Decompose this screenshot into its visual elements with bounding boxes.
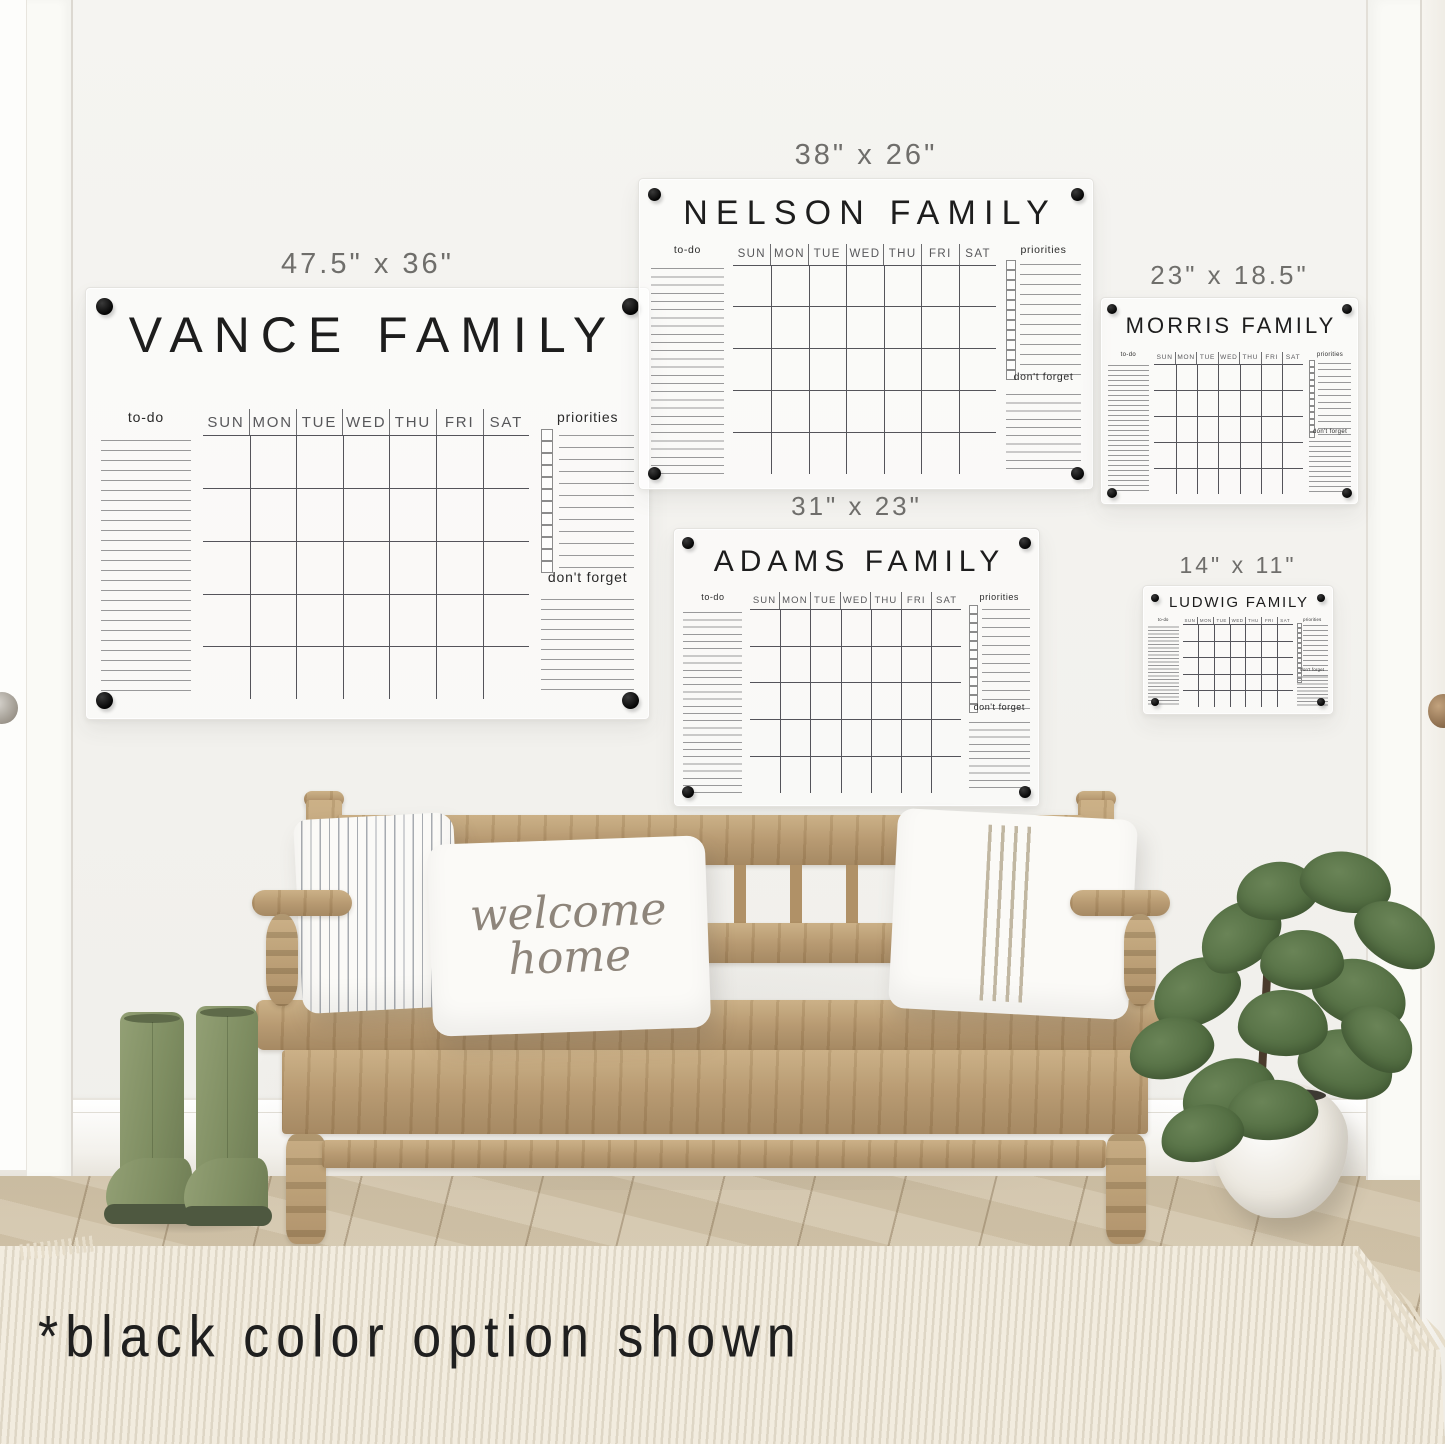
calendar-grid-cell (750, 646, 780, 683)
calendar-grid (203, 435, 529, 699)
priority-line (1318, 434, 1352, 435)
todo-lines (101, 431, 192, 699)
priorities-label: priorities (1297, 617, 1329, 622)
day-label: TUE (1197, 352, 1218, 363)
priority-line (1020, 284, 1081, 285)
calendar-grid-cell (931, 719, 961, 756)
board-body: to-do SUNMONTUEWEDTHUFRISAT priorities d… (1143, 617, 1333, 715)
calendar-grid-cell (750, 719, 780, 756)
calendar-grid-cell (809, 348, 847, 390)
calendar-grid-cell (389, 541, 436, 594)
calendar-grid-cell (959, 348, 997, 390)
checkbox-icon (969, 623, 978, 632)
priority-row (1006, 320, 1081, 330)
caption-text: *black color option shown (38, 1304, 803, 1371)
calendar-grid-cell (1230, 674, 1246, 691)
dont-forget-lines (1006, 387, 1081, 474)
priority-row (541, 513, 634, 525)
calendar-grid-cell (1197, 416, 1218, 442)
mounting-dot (96, 692, 113, 709)
calendar-board-ludwig: 14" x 11" LUDWIG FAMILY to-do SUNMONTUEW… (1142, 585, 1334, 715)
priority-line (982, 699, 1030, 700)
checkbox-icon (969, 659, 978, 668)
calendar-grid-cell (733, 348, 771, 390)
day-label: TUE (811, 592, 841, 609)
calendar-grid-cell (436, 594, 483, 647)
calendar-grid (750, 609, 961, 793)
calendar-grid-cell (389, 646, 436, 699)
calendar-grid-cell (296, 541, 343, 594)
calendar-grid (1154, 364, 1303, 494)
priority-line (1020, 314, 1081, 315)
day-label: WED (841, 592, 871, 609)
calendar-grid-cell (1261, 416, 1282, 442)
calendar-grid-cell (1240, 468, 1261, 494)
calendar-grid-cell (841, 609, 871, 646)
calendar-grid-cell (841, 646, 871, 683)
calendar-grid-cell (1197, 442, 1218, 468)
calendar-grid-cell (343, 488, 390, 541)
priority-line (1020, 364, 1081, 365)
checkbox-icon (969, 632, 978, 641)
calendar-grid-cell (1282, 390, 1303, 416)
calendar-grid-cell (901, 756, 931, 793)
calendar-column: SUNMONTUEWEDTHUFRISAT (203, 409, 529, 699)
welcome-home-pillow: welcome home (427, 835, 712, 1037)
board-body: to-do SUNMONTUEWEDTHUFRISAT priorities d… (1101, 352, 1358, 504)
size-label: 31" x 23" (791, 491, 922, 522)
checkbox-icon (1006, 310, 1016, 320)
day-label: SUN (733, 244, 771, 264)
checkbox-icon (541, 537, 553, 549)
calendar-grid-cell (959, 390, 997, 432)
day-label: WED (1219, 352, 1240, 363)
priority-line (1020, 354, 1081, 355)
calendar-grid-cell (296, 435, 343, 488)
calendar-grid-cell (483, 488, 530, 541)
day-label: WED (847, 244, 885, 264)
day-label: SAT (484, 409, 530, 435)
todo-lines (1148, 624, 1179, 707)
mounting-dot (1151, 594, 1159, 602)
calendar-grid (1183, 624, 1293, 707)
left-door (0, 0, 28, 1170)
calendar-grid-cell (846, 348, 884, 390)
priority-row (1006, 350, 1081, 360)
checkbox-icon (1006, 280, 1016, 290)
day-header-row: SUNMONTUEWEDTHUFRISAT (1154, 352, 1303, 363)
checkbox-icon (1006, 340, 1016, 350)
calendar-grid-cell (959, 306, 997, 348)
day-label: SAT (1278, 617, 1293, 625)
todo-lines (683, 606, 742, 793)
calendar-grid-cell (1277, 657, 1293, 674)
bench-arm-post-right (1124, 914, 1156, 1006)
priorities-label: priorities (541, 409, 634, 425)
calendar-grid-cell (1245, 690, 1261, 707)
todo-lines (1108, 361, 1149, 494)
priority-line (982, 690, 1030, 691)
side-column: priorities don't forget (541, 409, 634, 699)
dont-forget-lines (969, 716, 1030, 793)
priority-line (1303, 630, 1328, 631)
calendar-grid-cell (1245, 657, 1261, 674)
calendar-grid-cell (1277, 690, 1293, 707)
calendar-grid-cell (771, 390, 809, 432)
calendar-grid-cell (343, 594, 390, 647)
priority-line (1318, 389, 1352, 390)
calendar-grid-cell (1282, 468, 1303, 494)
checkbox-icon (541, 549, 553, 561)
calendar-grid-cell (1277, 641, 1293, 658)
mounting-dot (648, 467, 661, 480)
calendar-grid-cell (343, 646, 390, 699)
day-label: SUN (203, 409, 250, 435)
calendar-grid-cell (871, 609, 901, 646)
family-title: LUDWIG FAMILY (1143, 595, 1333, 612)
calendar-grid-cell (203, 646, 250, 699)
calendar-grid-cell (810, 682, 840, 719)
calendar-grid-cell (1240, 416, 1261, 442)
calendar-grid-cell (203, 594, 250, 647)
priority-line (1318, 408, 1352, 409)
priority-row (541, 453, 634, 465)
calendar-grid-cell (436, 541, 483, 594)
priority-line (982, 627, 1030, 628)
calendar-grid-cell (810, 719, 840, 756)
day-label: THU (884, 244, 922, 264)
calendar-grid-cell (1261, 442, 1282, 468)
mounting-dot (622, 298, 639, 315)
priority-line (559, 519, 635, 520)
calendar-grid-cell (810, 756, 840, 793)
priority-line (1303, 660, 1328, 661)
priority-line (559, 459, 635, 460)
calendar-grid-cell (1183, 690, 1199, 707)
calendar-grid-cell (1214, 657, 1230, 674)
day-label: SAT (932, 592, 961, 609)
calendar-grid-cell (901, 646, 931, 683)
calendar-grid-cell (1261, 690, 1277, 707)
calendar-grid-cell (750, 756, 780, 793)
pillow-text-line2: home (508, 934, 632, 983)
todo-label: to-do (651, 244, 724, 256)
priority-line (1303, 650, 1328, 651)
calendar-grid-cell (1218, 442, 1239, 468)
calendar-grid-cell (1198, 690, 1214, 707)
calendar-grid (733, 265, 996, 474)
day-label: FRI (437, 409, 484, 435)
calendar-grid-cell (771, 432, 809, 474)
calendar-grid-cell (296, 488, 343, 541)
calendar-grid-cell (203, 488, 250, 541)
mounting-dot (96, 298, 113, 315)
priority-line (1318, 415, 1352, 416)
day-label: MON (771, 244, 809, 264)
calendar-grid-cell (901, 682, 931, 719)
priority-row (541, 441, 634, 453)
calendar-grid-cell (1218, 416, 1239, 442)
calendar-grid-cell (1176, 364, 1197, 390)
checkbox-icon (1006, 330, 1016, 340)
calendar-grid-cell (250, 488, 297, 541)
calendar-grid-cell (921, 432, 959, 474)
day-label: SUN (750, 592, 780, 609)
checkbox-icon (969, 686, 978, 695)
priority-line (1303, 625, 1328, 626)
calendar-board-vance: 47.5" x 36" VANCE FAMILY to-do SUNMONTUE… (85, 287, 650, 720)
calendar-grid-cell (483, 594, 530, 647)
calendar-grid-cell (846, 306, 884, 348)
calendar-grid-cell (901, 719, 931, 756)
family-title: MORRIS FAMILY (1101, 314, 1358, 338)
calendar-grid-cell (1240, 390, 1261, 416)
calendar-grid-cell (809, 265, 847, 307)
calendar-grid-cell (959, 432, 997, 474)
priority-row (1006, 340, 1081, 350)
calendar-column: SUNMONTUEWEDTHUFRISAT (1154, 352, 1303, 494)
checkbox-icon (541, 441, 553, 453)
todo-column: to-do (651, 244, 724, 474)
checkbox-icon (969, 641, 978, 650)
side-column: priorities don't forget (1297, 617, 1329, 708)
calendar-grid-cell (884, 348, 922, 390)
dont-forget-label: don't forget (969, 702, 1030, 712)
calendar-grid-cell (1183, 674, 1199, 691)
rain-boot-left (120, 1012, 184, 1182)
calendar-grid-cell (1245, 624, 1261, 641)
side-column: priorities don't forget (1006, 244, 1081, 474)
calendar-grid-cell (1230, 624, 1246, 641)
priority-line (982, 636, 1030, 637)
priority-line (1020, 304, 1081, 305)
priority-row (541, 501, 634, 513)
day-label: FRI (922, 244, 960, 264)
size-label: 14" x 11" (1179, 552, 1296, 579)
calendar-grid-cell (1176, 416, 1197, 442)
calendar-grid-cell (780, 719, 810, 756)
todo-label: to-do (1148, 617, 1179, 622)
priority-row (1006, 300, 1081, 310)
day-header-row: SUNMONTUEWEDTHUFRISAT (203, 409, 529, 435)
day-label: WED (343, 409, 390, 435)
mounting-dot (682, 537, 694, 549)
calendar-grid-cell (483, 435, 530, 488)
priority-line (559, 507, 635, 508)
day-label: FRI (902, 592, 932, 609)
priorities-checklist (969, 605, 1030, 693)
calendar-grid-cell (921, 390, 959, 432)
priority-row (1006, 270, 1081, 280)
calendar-grid-cell (436, 488, 483, 541)
calendar-grid-cell (1230, 641, 1246, 658)
calendar-grid-cell (1154, 442, 1175, 468)
calendar-grid-cell (841, 682, 871, 719)
rain-boot-right-sole (182, 1206, 272, 1226)
checkbox-icon (969, 650, 978, 659)
dont-forget-lines (1309, 437, 1352, 494)
calendar-grid-cell (250, 594, 297, 647)
calendar-grid-cell (771, 265, 809, 307)
day-header-row: SUNMONTUEWEDTHUFRISAT (750, 592, 961, 609)
checkbox-icon (541, 465, 553, 477)
board-body: to-do SUNMONTUEWEDTHUFRISAT priorities d… (674, 592, 1039, 806)
checkbox-icon (541, 429, 553, 441)
priority-line (982, 663, 1030, 664)
calendar-grid-cell (296, 646, 343, 699)
checkbox-icon (1006, 260, 1016, 270)
calendar-grid-cell (250, 541, 297, 594)
calendar-grid-cell (901, 609, 931, 646)
calendar-grid-cell (846, 432, 884, 474)
calendar-grid-cell (1214, 690, 1230, 707)
priorities-checklist (1309, 360, 1352, 422)
calendar-grid-cell (1245, 674, 1261, 691)
calendar-grid-cell (921, 306, 959, 348)
priority-line (1020, 274, 1081, 275)
dont-forget-label: don't forget (1297, 667, 1329, 672)
day-label: SUN (1183, 617, 1199, 625)
calendar-grid-cell (750, 682, 780, 719)
mounting-dot (1019, 537, 1031, 549)
priority-line (559, 435, 635, 436)
calendar-grid-cell (483, 541, 530, 594)
checkbox-icon (541, 477, 553, 489)
calendar-grid-cell (1218, 468, 1239, 494)
calendar-grid-cell (1154, 416, 1175, 442)
priority-row (541, 489, 634, 501)
priority-row (1006, 290, 1081, 300)
mounting-dot (1317, 698, 1325, 706)
priority-row (541, 537, 634, 549)
priority-line (559, 543, 635, 544)
priority-line (982, 672, 1030, 673)
mounting-dot (1019, 786, 1031, 798)
size-label: 23" x 18.5" (1150, 260, 1308, 291)
priority-row (969, 650, 1030, 659)
priority-row (541, 465, 634, 477)
mounting-dot (1071, 467, 1084, 480)
priority-line (1318, 369, 1352, 370)
calendar-grid-cell (780, 646, 810, 683)
dont-forget-lines (541, 590, 634, 699)
calendar-grid-cell (771, 348, 809, 390)
priority-line (982, 681, 1030, 682)
day-label: TUE (809, 244, 847, 264)
checkbox-icon (541, 525, 553, 537)
priority-line (1318, 421, 1352, 422)
calendar-grid-cell (1183, 657, 1199, 674)
bench-front-leg-left (286, 1134, 326, 1244)
calendar-grid-cell (483, 646, 530, 699)
calendar-grid-cell (1261, 657, 1277, 674)
calendar-grid-cell (1183, 624, 1199, 641)
todo-label: to-do (683, 592, 742, 602)
calendar-grid-cell (884, 432, 922, 474)
checkbox-icon (541, 513, 553, 525)
calendar-grid-cell (931, 609, 961, 646)
day-label: TUE (297, 409, 344, 435)
priority-row (969, 632, 1030, 641)
calendar-grid-cell (1197, 468, 1218, 494)
calendar-grid-cell (871, 756, 901, 793)
calendar-grid-cell (931, 646, 961, 683)
calendar-grid-cell (250, 646, 297, 699)
calendar-grid-cell (436, 646, 483, 699)
day-header-row: SUNMONTUEWEDTHUFRISAT (1183, 617, 1293, 625)
checkbox-icon (1006, 300, 1016, 310)
priority-line (1020, 344, 1081, 345)
priority-row (969, 641, 1030, 650)
day-label: THU (1246, 617, 1262, 625)
calendar-grid-cell (733, 265, 771, 307)
calendar-grid-cell (809, 432, 847, 474)
priority-row (1006, 330, 1081, 340)
family-title: VANCE FAMILY (86, 308, 649, 363)
calendar-grid-cell (1261, 390, 1282, 416)
calendar-grid-cell (436, 435, 483, 488)
calendar-grid-cell (1282, 364, 1303, 390)
calendar-grid-cell (921, 265, 959, 307)
priority-line (559, 555, 635, 556)
calendar-grid-cell (1154, 364, 1175, 390)
calendar-grid-cell (1197, 364, 1218, 390)
day-label: TUE (1214, 617, 1230, 625)
calendar-grid-cell (733, 432, 771, 474)
calendar-grid-cell (1230, 657, 1246, 674)
calendar-grid-cell (884, 265, 922, 307)
priority-row (541, 549, 634, 561)
calendar-grid-cell (750, 609, 780, 646)
priority-line (1020, 324, 1081, 325)
priority-line (1303, 645, 1328, 646)
day-label: MON (780, 592, 810, 609)
checkbox-icon (541, 489, 553, 501)
calendar-column: SUNMONTUEWEDTHUFRISAT (733, 244, 996, 474)
priority-row (969, 686, 1030, 695)
priority-line (1318, 395, 1352, 396)
calendar-grid-cell (921, 348, 959, 390)
mounting-dot (1342, 304, 1352, 314)
priority-line (559, 483, 635, 484)
calendar-grid-cell (1261, 624, 1277, 641)
calendar-grid-cell (884, 306, 922, 348)
side-column: priorities don't forget (969, 592, 1030, 793)
todo-column: to-do (101, 409, 192, 699)
priority-line (982, 645, 1030, 646)
day-label: THU (1240, 352, 1261, 363)
calendar-grid-cell (1282, 416, 1303, 442)
calendar-grid-cell (809, 390, 847, 432)
todo-lines (651, 261, 724, 474)
priority-row (541, 477, 634, 489)
priority-line (559, 495, 635, 496)
calendar-grid-cell (1218, 390, 1239, 416)
mounting-dot (622, 692, 639, 709)
calendar-board-nelson: 38" x 26" NELSON FAMILY to-do SUNMONTUEW… (638, 178, 1094, 490)
room-scene: 47.5" x 36" VANCE FAMILY to-do SUNMONTUE… (0, 0, 1445, 1444)
day-label: SAT (960, 244, 997, 264)
priority-row (541, 525, 634, 537)
calendar-grid-cell (1218, 364, 1239, 390)
calendar-grid-cell (771, 306, 809, 348)
priority-line (1020, 334, 1081, 335)
priorities-checklist (1006, 260, 1081, 361)
bench-apron (282, 1050, 1148, 1134)
calendar-grid-cell (1245, 641, 1261, 658)
mounting-dot (1107, 304, 1117, 314)
calendar-grid-cell (250, 435, 297, 488)
